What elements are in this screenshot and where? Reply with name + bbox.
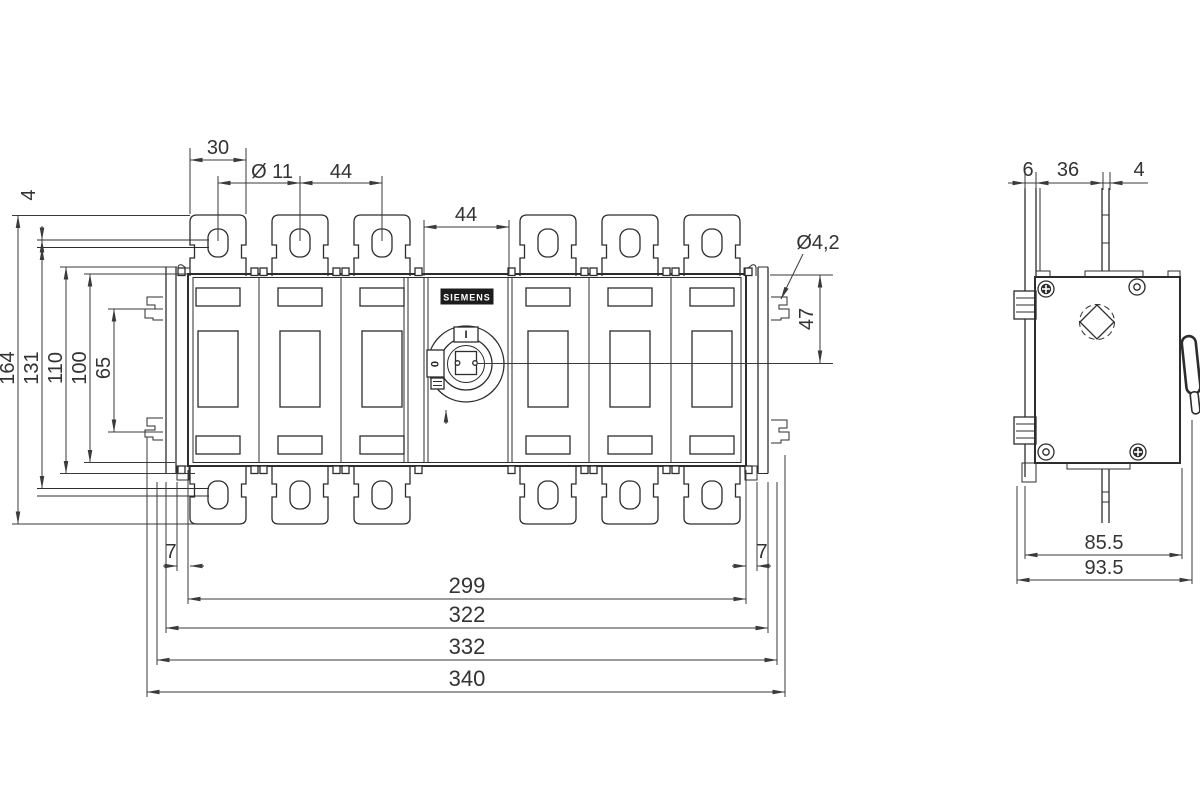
end-plate-left — [166, 267, 176, 474]
side-handle — [1181, 335, 1200, 414]
dim-pole-pitch: 44 — [330, 161, 352, 183]
dim-offset-right: 7 — [756, 541, 767, 563]
dim-offset-left: 7 — [165, 541, 176, 563]
dimension-drawing: SIEMENS I 0 — [0, 0, 1200, 800]
dim-width-299: 299 — [449, 573, 486, 598]
dim-body-depth: 85.5 — [1085, 532, 1124, 554]
dim-width-322: 322 — [449, 602, 486, 627]
dim-overall-height: 164 — [0, 351, 19, 384]
pole-face-2 — [278, 288, 322, 454]
handle-padlock-icon — [431, 378, 444, 389]
handle-on-marking: I — [464, 329, 467, 341]
center-module: SIEMENS I 0 — [427, 289, 504, 424]
plate-clip-bottom — [1014, 417, 1036, 444]
dim-center-module: 44 — [455, 204, 477, 226]
dim-width-340: 340 — [449, 666, 486, 691]
dim-plate-thickness: 6 — [1022, 159, 1033, 181]
dim-slot-diameter: Ø4,2 — [796, 232, 839, 254]
terminal-tab-bottom-2 — [272, 466, 328, 524]
dim-side-busbar: 4 — [1133, 159, 1144, 181]
busbar-top — [37, 240, 209, 248]
terminal-tab-bottom-6 — [684, 466, 740, 524]
terminal-tab-top-5 — [602, 215, 658, 276]
plate-clip-top — [1014, 291, 1036, 319]
terminal-tab-top-6 — [684, 215, 740, 276]
plate-foot — [1022, 463, 1036, 482]
dim-handle-center: 47 — [796, 308, 818, 330]
side-busbar-bottom — [1102, 469, 1109, 523]
dim-busbar-thickness: 4 — [18, 189, 40, 200]
front-dimensions: 30 Ø 11 44 44 Ø4,2 47 164 4 — [0, 137, 840, 697]
dim-tab-width: 30 — [207, 137, 229, 159]
front-view: SIEMENS I 0 — [37, 215, 833, 524]
pole-face-3 — [360, 288, 404, 454]
pole-face-4 — [526, 288, 570, 454]
shaft-opening — [1080, 305, 1115, 340]
dim-hole-diameter: Ø 11 — [251, 161, 293, 183]
busbar-bottom — [37, 489, 209, 497]
terminal-tab-bottom-1 — [190, 466, 246, 524]
pole-face-1 — [196, 288, 240, 454]
end-plate-right — [758, 267, 768, 474]
terminal-tab-bottom-3 — [354, 466, 410, 524]
dim-width-332: 332 — [449, 634, 486, 659]
side-view — [1014, 188, 1200, 523]
handle-off-marking: 0 — [430, 361, 442, 367]
screw-bottom-right — [1130, 444, 1146, 460]
drawing-canvas: SIEMENS I 0 — [0, 0, 1200, 800]
pole-face-6 — [690, 288, 734, 454]
terminal-tab-top-4 — [520, 215, 576, 276]
dim-height-65: 65 — [93, 357, 115, 379]
dim-height-131: 131 — [21, 351, 43, 384]
mount-slot-top-right — [771, 297, 789, 320]
dim-height-110: 110 — [45, 352, 67, 384]
terminal-tab-bottom-4 — [520, 466, 576, 524]
pole-face-5 — [608, 288, 652, 454]
side-body — [1035, 277, 1180, 463]
dim-body-height: 100 — [69, 351, 91, 384]
mount-slot-bottom-right — [771, 420, 789, 443]
rotary-handle: I 0 — [427, 326, 504, 424]
screw-top-left — [1038, 281, 1054, 297]
dim-depth-36: 36 — [1057, 159, 1079, 181]
terminal-tab-bottom-5 — [602, 466, 658, 524]
screw-top-right — [1129, 279, 1145, 295]
screw-bottom-left — [1038, 444, 1054, 460]
dim-total-depth: 93.5 — [1085, 557, 1124, 579]
mount-slot-bottom-left — [145, 418, 163, 440]
side-busbar-top — [1102, 188, 1109, 271]
brand-label: SIEMENS — [443, 293, 491, 303]
